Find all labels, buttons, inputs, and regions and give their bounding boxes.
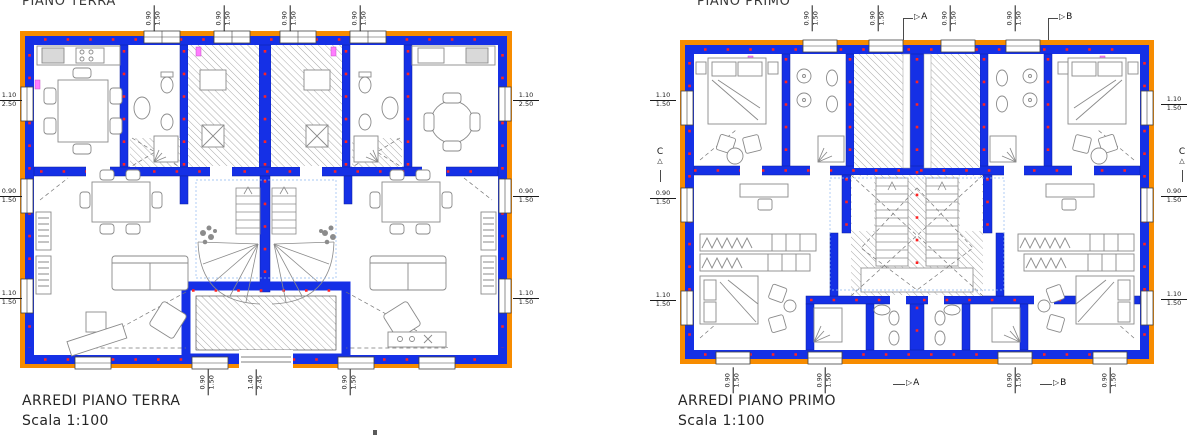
plan-caption-piano-primo: ARREDI PIANO PRIMO Scala 1:100 xyxy=(678,392,836,431)
section-line-a-top-h xyxy=(903,18,913,19)
dimension-label: 0.901.50 xyxy=(1161,188,1187,205)
dimension-label: 0.901.50 xyxy=(352,5,369,31)
section-arrow-icon: ▷ xyxy=(1059,13,1065,21)
section-marker-c-right: C△ xyxy=(1176,148,1188,166)
caption-title: ARREDI PIANO PRIMO xyxy=(678,393,836,409)
plan-title-piano-terra: PIANO TERRA xyxy=(22,0,116,9)
floor-plan-piano-terra-drawing xyxy=(20,30,512,370)
section-marker-a-top: ▷A xyxy=(914,12,927,22)
dimension-label: 0.901.50 xyxy=(650,190,676,207)
floor-plan-piano-primo-drawing xyxy=(680,38,1156,366)
dimension-label: 0.901.50 xyxy=(282,5,299,31)
dimension-label: 1.102.50 xyxy=(513,92,539,109)
dimension-label: 0.901.50 xyxy=(1007,5,1024,31)
plan-title-piano-primo: PIANO PRIMO xyxy=(697,0,790,9)
section-arrow-icon: ▷ xyxy=(906,379,912,387)
dimension-label: 0.901.50 xyxy=(1007,367,1024,393)
dimension-label: 0.901.50 xyxy=(725,367,742,393)
caption-scale: Scala 1:100 xyxy=(678,412,836,432)
caption-title: ARREDI PIANO TERRA xyxy=(22,393,180,409)
dimension-label: 0.901.50 xyxy=(817,367,834,393)
section-line-a-bottom xyxy=(893,384,905,385)
dimension-label: 0.901.50 xyxy=(513,188,539,205)
dimension-label: 0.901.50 xyxy=(200,369,217,395)
section-arrow-icon: ▷ xyxy=(1053,379,1059,387)
dimension-label: 0.901.50 xyxy=(804,5,821,31)
dimension-label: 0.901.50 xyxy=(870,5,887,31)
section-marker-b-bottom: ▷B xyxy=(1053,378,1066,388)
dimension-label: 1.101.50 xyxy=(1161,96,1187,113)
drawing-sheet: PIANO TERRA xyxy=(0,0,1200,442)
section-marker-c-left: C△ xyxy=(654,148,666,166)
caption-scale: Scala 1:100 xyxy=(22,412,180,432)
tiny-reference-mark xyxy=(373,430,377,435)
section-line-b-bottom xyxy=(1040,384,1052,385)
dimension-label: 1.101.50 xyxy=(0,290,22,307)
section-arrow-icon: ▷ xyxy=(914,13,920,21)
dimension-label: 0.901.50 xyxy=(1102,367,1119,393)
dimension-label: 0.901.50 xyxy=(146,5,163,31)
section-line-a-top xyxy=(903,18,904,40)
section-marker-a-bottom: ▷A xyxy=(906,378,919,388)
section-arrow-icon: △ xyxy=(1176,158,1188,166)
dimension-label: 1.402.45 xyxy=(248,369,265,395)
section-arrow-icon: △ xyxy=(654,158,666,166)
dimension-label: 1.101.50 xyxy=(650,92,676,109)
floor-plan-piano-primo xyxy=(680,38,1156,366)
dimension-label: 1.102.50 xyxy=(0,92,22,109)
floor-plan-piano-terra xyxy=(20,30,512,370)
dimension-label: 0.901.50 xyxy=(342,369,359,395)
dimension-label: 1.101.50 xyxy=(513,290,539,307)
dimension-label: 0.901.50 xyxy=(942,5,959,31)
section-marker-b-top: ▷B xyxy=(1059,12,1072,22)
dimension-label: 1.101.50 xyxy=(1161,291,1187,308)
dimension-label: 0.901.50 xyxy=(0,188,22,205)
dimension-label: 1.101.50 xyxy=(650,292,676,309)
section-line-c-right xyxy=(1182,170,1183,182)
plan-caption-piano-terra: ARREDI PIANO TERRA Scala 1:100 xyxy=(22,392,180,431)
section-line-c-left xyxy=(660,170,661,182)
dimension-label: 0.901.50 xyxy=(216,5,233,31)
section-line-b-top-h xyxy=(1048,18,1058,19)
section-line-b-top xyxy=(1048,18,1049,40)
